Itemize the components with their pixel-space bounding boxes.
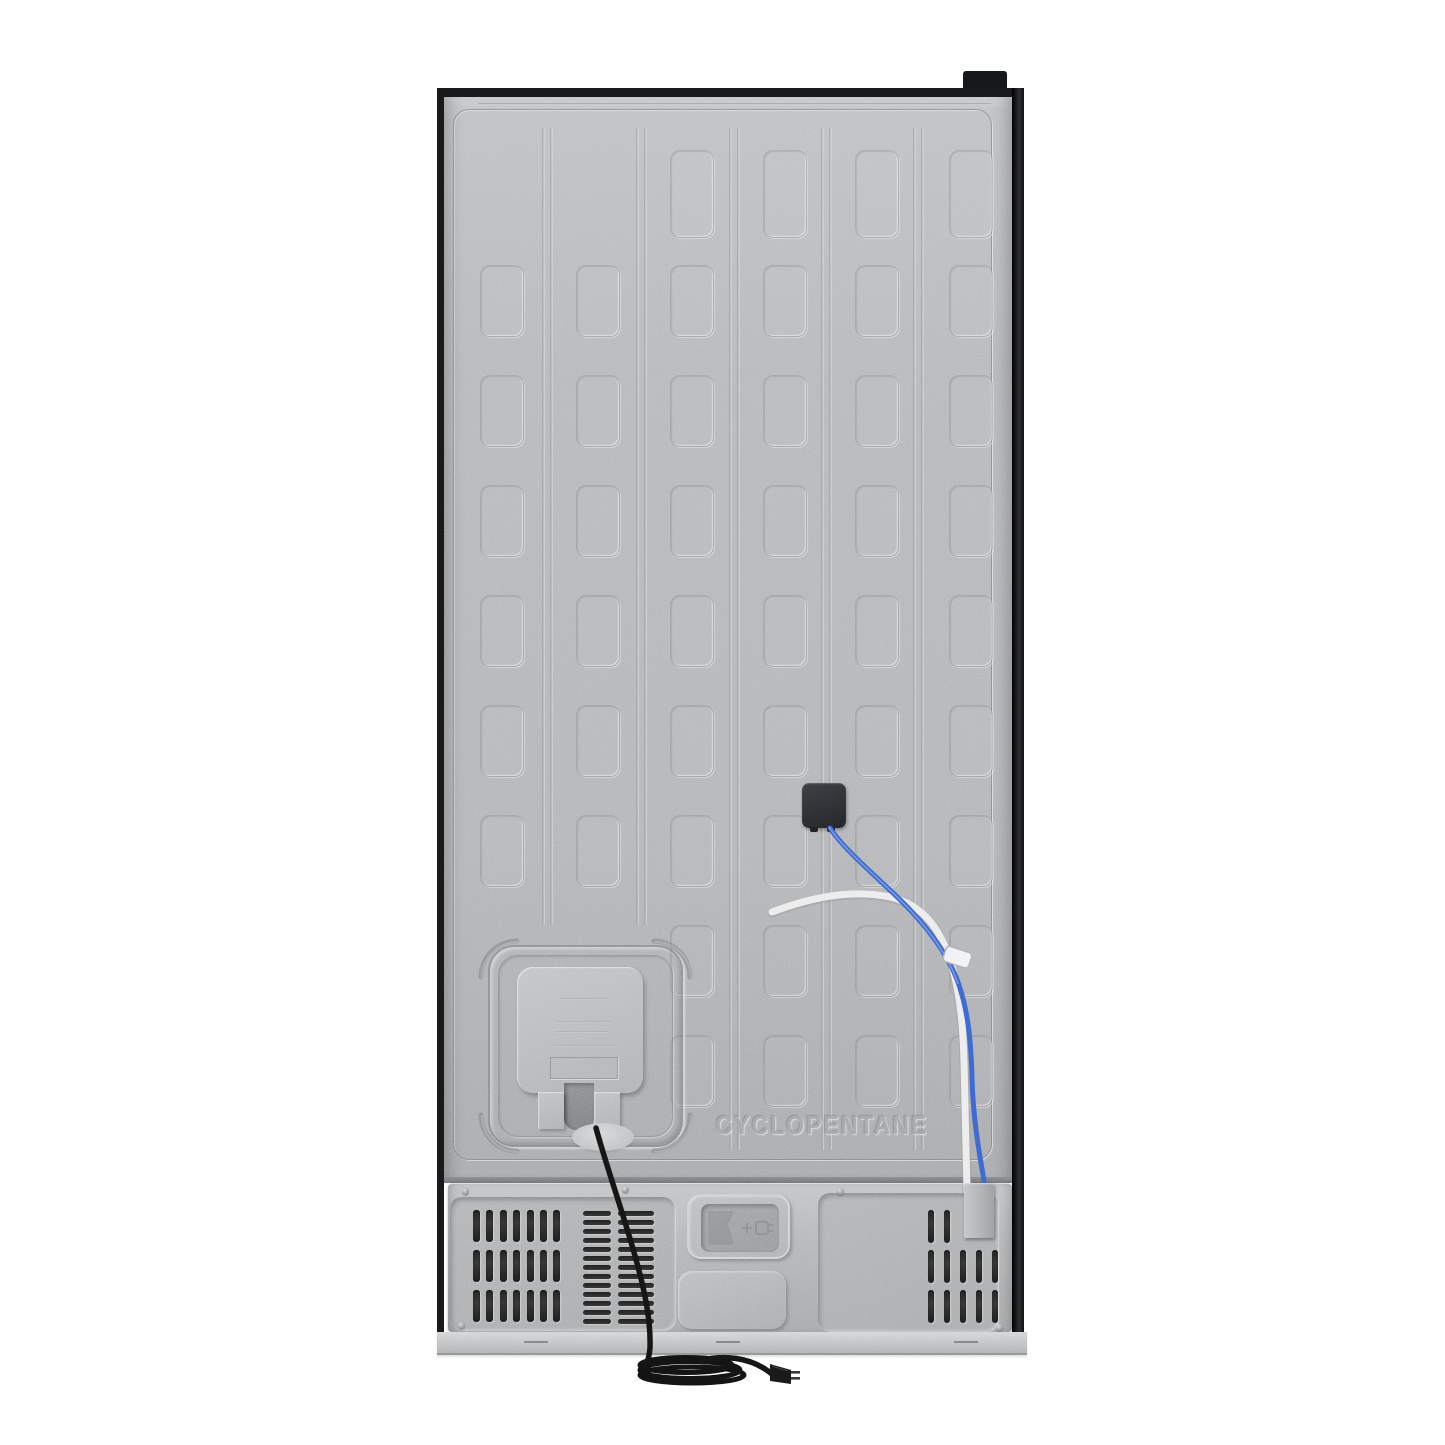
left-vent-slot (473, 1210, 480, 1242)
emboss-cell (763, 150, 807, 238)
screw (996, 1324, 1003, 1331)
back-panel: CYCLOPENTANE (444, 97, 1012, 1180)
center-vent-slot (618, 1238, 654, 1243)
center-vent-slot (618, 1211, 654, 1216)
left-vent-slot (540, 1290, 547, 1322)
left-vent-slot (553, 1250, 560, 1282)
left-vent-slot (527, 1250, 534, 1282)
right-vent-slot (928, 1250, 934, 1283)
left-vent-slot (500, 1210, 507, 1242)
left-vent-slot (500, 1250, 507, 1282)
refrigerant-embossed-text: CYCLOPENTANE (712, 1110, 932, 1140)
panel-groove (829, 128, 832, 1150)
power-cord-coil (640, 1358, 744, 1384)
cabinet-frame-right (1012, 88, 1024, 1334)
emboss-cell (763, 485, 807, 557)
base-dash (954, 1341, 978, 1343)
right-vent-slot (976, 1250, 982, 1283)
emboss-cell (763, 1035, 807, 1107)
center-vent-slot (583, 1265, 611, 1270)
plate-emboss-line (556, 1031, 608, 1033)
compressor-cover (448, 1183, 1012, 1332)
power-plug (770, 1364, 800, 1384)
center-lower-emboss (678, 1271, 786, 1329)
center-vent-slot (618, 1247, 654, 1252)
center-vent-slot (583, 1247, 611, 1252)
left-vent-slot (513, 1250, 520, 1282)
emboss-cell (855, 375, 899, 447)
emboss-cell (480, 265, 524, 337)
emboss-cell (763, 375, 807, 447)
tube-bracket (964, 1183, 994, 1238)
panel-groove (636, 128, 639, 925)
junction-box-recess (701, 1204, 779, 1252)
center-vent-slot (618, 1220, 654, 1225)
left-vent-slot (513, 1210, 520, 1242)
power-plug-icon (701, 1204, 779, 1252)
emboss-cell (763, 815, 807, 887)
right-vent-slot (976, 1290, 982, 1323)
screw (622, 1186, 629, 1193)
emboss-cell (949, 485, 993, 557)
embossed-top-line (478, 103, 991, 105)
screw (837, 1188, 844, 1195)
emboss-cell (480, 705, 524, 777)
center-vent-slot (618, 1274, 654, 1279)
center-vent-slot (583, 1292, 611, 1297)
center-vent-slot (583, 1211, 611, 1216)
control-box-tab (827, 827, 835, 832)
emboss-cell (855, 485, 899, 557)
emboss-cell (763, 925, 807, 997)
cabinet-frame-left (437, 88, 444, 1334)
emboss-cell (855, 265, 899, 337)
center-vent-slot (583, 1310, 611, 1315)
control-box (802, 783, 846, 828)
center-vent-slot (618, 1229, 654, 1234)
emboss-cell (576, 485, 620, 557)
left-vent-slot (473, 1290, 480, 1322)
control-box-tab (810, 827, 818, 832)
left-vent-slot (527, 1210, 534, 1242)
panel-groove (913, 128, 916, 1150)
left-vent-slot (540, 1210, 547, 1242)
left-vent-slot (486, 1290, 493, 1322)
right-vent-slot (928, 1290, 934, 1323)
emboss-cell (576, 595, 620, 667)
left-vent-slot (553, 1290, 560, 1322)
emboss-cell (576, 375, 620, 447)
center-vent-slot (583, 1283, 611, 1288)
emboss-cell (763, 705, 807, 777)
right-vent-slot (928, 1210, 934, 1243)
panel-groove (729, 128, 732, 1150)
emboss-cell (480, 815, 524, 887)
plate-emboss-line (560, 998, 608, 1000)
center-vent-slot (583, 1256, 611, 1261)
center-vent-slot (618, 1265, 654, 1270)
emboss-cell (670, 815, 714, 887)
base-strip (437, 1332, 1027, 1355)
center-vent-slot (583, 1220, 611, 1225)
emboss-cell (670, 595, 714, 667)
panel-groove (542, 128, 545, 925)
emboss-cell (949, 595, 993, 667)
emboss-cell (855, 1035, 899, 1107)
sealant-blob (572, 1123, 634, 1151)
emboss-cell (763, 265, 807, 337)
panel-groove (644, 128, 647, 925)
left-vent-slot (500, 1290, 507, 1322)
emboss-cell (949, 705, 993, 777)
right-vent-slot (960, 1250, 966, 1283)
center-vent-slot (618, 1283, 654, 1288)
panel-groove (550, 128, 553, 925)
plate-emboss-line (550, 1045, 618, 1047)
emboss-cell (949, 150, 993, 238)
emboss-cell (670, 705, 714, 777)
emboss-cell (855, 925, 899, 997)
base-dash (524, 1341, 548, 1343)
center-vent-slot (583, 1319, 611, 1324)
center-vent-slot (618, 1301, 654, 1306)
right-vent-slot (960, 1290, 966, 1323)
screw (462, 1188, 469, 1195)
center-vent-slot (583, 1229, 611, 1234)
emboss-cell (576, 265, 620, 337)
emboss-cell (949, 265, 993, 337)
drain-cover-leg (538, 1092, 564, 1129)
emboss-cell (480, 595, 524, 667)
power-cord-tail (702, 1358, 774, 1376)
emboss-cell (949, 1035, 993, 1107)
emboss-cell (576, 705, 620, 777)
emboss-cell (855, 815, 899, 887)
screw (458, 1322, 465, 1329)
right-vent-slot (944, 1210, 950, 1243)
emboss-cell (670, 375, 714, 447)
emboss-cell (763, 595, 807, 667)
left-vent-slot (486, 1250, 493, 1282)
center-vent-slot (583, 1301, 611, 1306)
left-vent-slot (513, 1290, 520, 1322)
center-vent-slot (618, 1310, 654, 1315)
left-vent-slot (553, 1210, 560, 1242)
emboss-cell (576, 815, 620, 887)
emboss-cell (670, 150, 714, 238)
emboss-cell (949, 815, 993, 887)
right-vent-slot (944, 1290, 950, 1323)
emboss-cell (855, 595, 899, 667)
right-vent-slot (992, 1290, 998, 1323)
center-vent-slot (583, 1238, 611, 1243)
left-vent-slot (486, 1210, 493, 1242)
panel-groove (921, 128, 924, 1150)
center-vent-slot (618, 1292, 654, 1297)
panel-groove (821, 128, 824, 1150)
panel-groove (737, 128, 740, 1150)
emboss-cell (949, 925, 993, 997)
center-vent-slot (618, 1256, 654, 1261)
left-vent-slot (527, 1290, 534, 1322)
drain-slot (564, 1083, 594, 1130)
refrigerator-back: CYCLOPENTANE (0, 0, 1445, 1445)
junction-box-emboss (687, 1194, 790, 1259)
emboss-cell (855, 705, 899, 777)
right-vent-slot (992, 1250, 998, 1283)
right-vent-slot (944, 1250, 950, 1283)
emboss-cell (480, 375, 524, 447)
emboss-cell (855, 150, 899, 238)
plate-emboss-line (556, 1021, 612, 1023)
left-vent-slot (473, 1250, 480, 1282)
emboss-cell (480, 485, 524, 557)
center-vent-slot (583, 1274, 611, 1279)
product-photo-stage: CYCLOPENTANE (0, 0, 1445, 1445)
plate-emboss-label (550, 1057, 618, 1079)
emboss-cell (670, 485, 714, 557)
emboss-cell (949, 375, 993, 447)
center-vent-slot (618, 1319, 654, 1324)
base-dash (716, 1341, 740, 1343)
left-vent-slot (540, 1250, 547, 1282)
emboss-cell (670, 265, 714, 337)
